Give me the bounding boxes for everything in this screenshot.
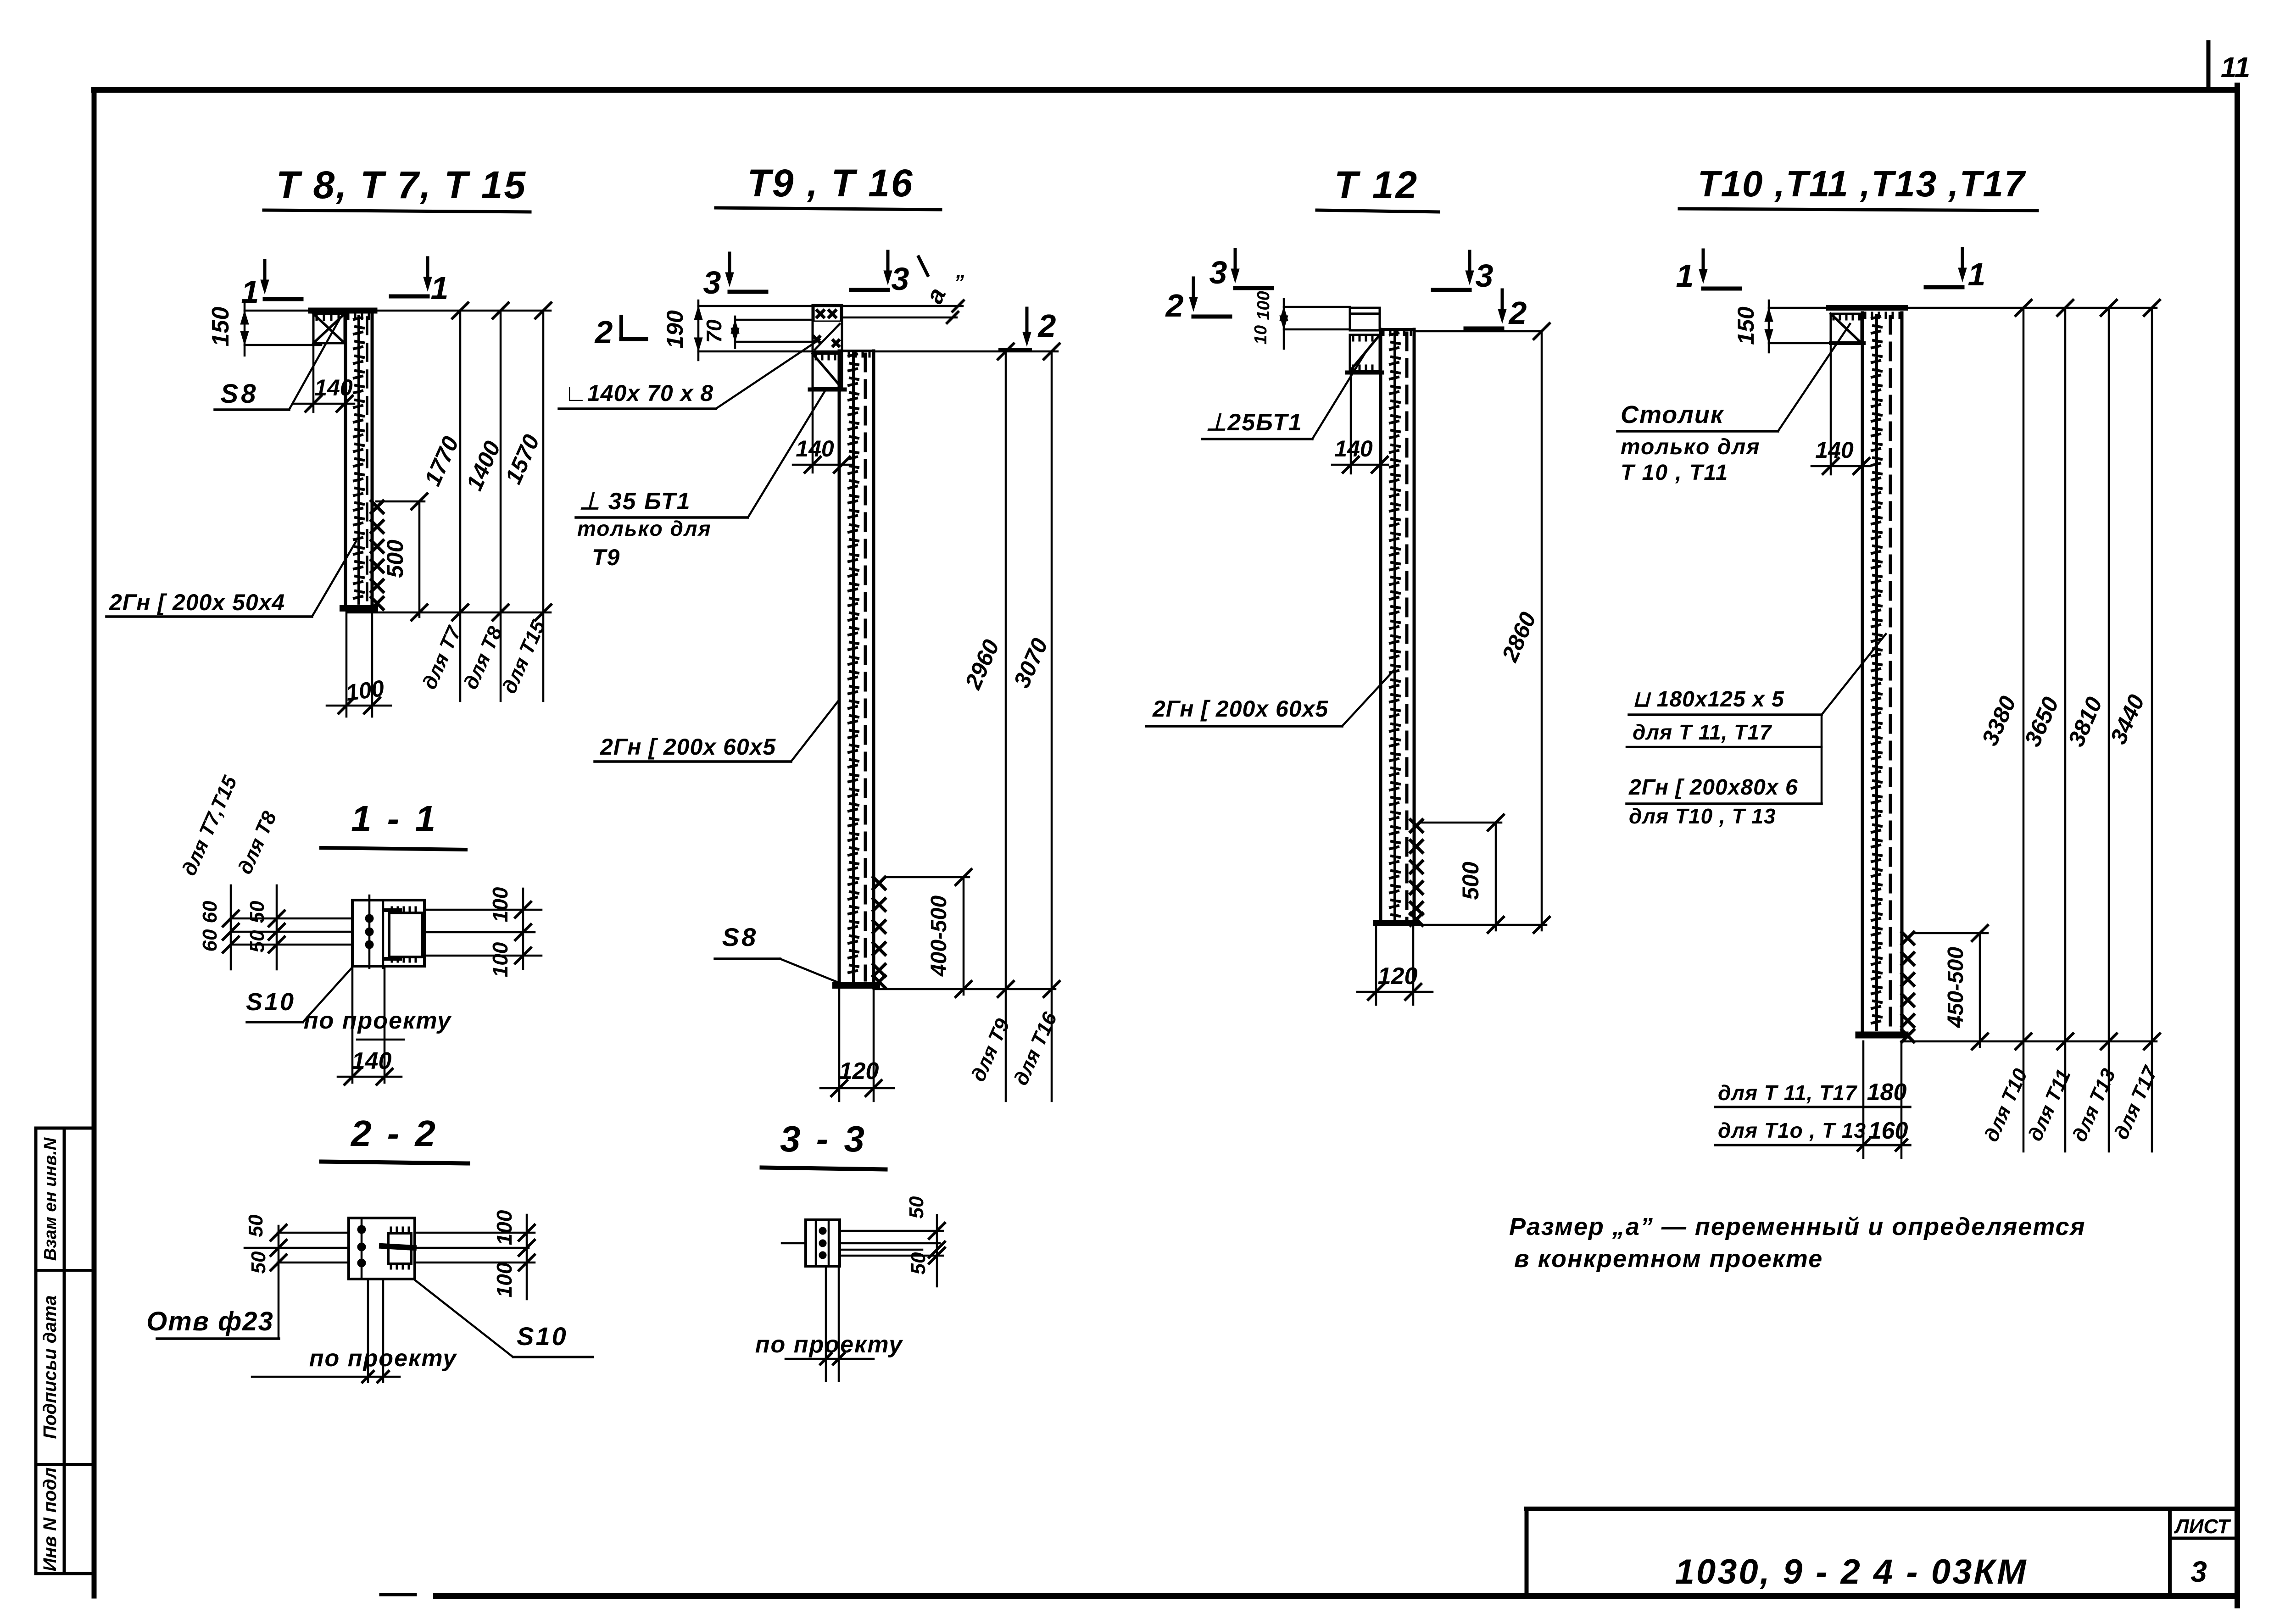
svg-text:10: 10 [1251, 325, 1271, 345]
svg-text:Т 10 , Т11: Т 10 , Т11 [1621, 461, 1728, 485]
svg-text:∟140х 70 х 8: ∟140х 70 х 8 [564, 380, 713, 406]
svg-text:”: ” [954, 271, 964, 294]
svg-text:2: 2 [1508, 295, 1527, 331]
svg-text:100: 100 [488, 887, 512, 922]
svg-text:50: 50 [247, 1251, 270, 1274]
svg-text:Т10 ,Т11 ,Т13 ,Т17: Т10 ,Т11 ,Т13 ,Т17 [1698, 163, 2026, 204]
svg-text:для Т 11, Т17: для Т 11, Т17 [1633, 720, 1772, 744]
svg-text:50: 50 [245, 1214, 267, 1237]
svg-text:3: 3 [1476, 258, 1494, 294]
svg-text:3 - 3: 3 - 3 [780, 1118, 867, 1159]
svg-text:для Т10 , Т 13: для Т10 , Т 13 [1629, 804, 1776, 828]
svg-text:1030, 9 - 2 4 - 03КМ: 1030, 9 - 2 4 - 03КМ [1675, 1552, 2028, 1591]
svg-text:Отв ф23: Отв ф23 [146, 1307, 274, 1336]
svg-text:120: 120 [1378, 963, 1418, 990]
svg-text:Т9 , Т 16: Т9 , Т 16 [747, 161, 914, 205]
svg-text:100: 100 [1254, 291, 1273, 320]
svg-text:100: 100 [492, 1210, 516, 1245]
svg-text:2: 2 [1165, 288, 1184, 323]
svg-text:2: 2 [594, 314, 613, 350]
svg-text:140: 140 [796, 436, 834, 462]
svg-text:Взам ен инв.N: Взам ен инв.N [41, 1137, 60, 1261]
svg-text:450-500: 450-500 [1944, 947, 1968, 1028]
svg-text:⊔ 180х125 х 5: ⊔ 180х125 х 5 [1633, 687, 1784, 712]
svg-text:500: 500 [382, 539, 408, 578]
svg-text:100: 100 [344, 675, 386, 706]
svg-text:ЛИСТ: ЛИСТ [2174, 1515, 2231, 1538]
svg-text:Подписьи дата: Подписьи дата [40, 1295, 60, 1439]
svg-text:180: 180 [1867, 1079, 1907, 1106]
svg-text:S8: S8 [221, 379, 259, 409]
svg-text:Столик: Столик [1621, 401, 1724, 428]
svg-text:1 - 1: 1 - 1 [351, 798, 438, 839]
svg-text:120: 120 [839, 1058, 879, 1085]
svg-text:⊥ 35 БТ1: ⊥ 35 БТ1 [579, 488, 691, 515]
svg-text:S8: S8 [722, 923, 758, 951]
svg-text:140: 140 [314, 375, 353, 400]
svg-text:в конкретном проекте: в конкретном проекте [1514, 1245, 1823, 1273]
svg-text:500: 500 [1458, 862, 1483, 900]
svg-text:100: 100 [492, 1262, 516, 1297]
svg-text:S10: S10 [246, 988, 295, 1016]
svg-text:3: 3 [892, 261, 909, 297]
svg-text:Размер „а” — переменный и оп: Размер „а” — переменный и определяется [1509, 1213, 2086, 1240]
svg-text:150: 150 [1733, 306, 1759, 345]
svg-text:60: 60 [199, 901, 221, 923]
svg-text:3: 3 [2190, 1555, 2207, 1588]
svg-text:50: 50 [907, 1252, 930, 1274]
svg-text:Т9: Т9 [592, 545, 620, 570]
svg-text:1: 1 [431, 270, 449, 306]
svg-text:1: 1 [1676, 258, 1694, 294]
svg-text:S10: S10 [517, 1322, 568, 1351]
svg-text:2Гн [ 200х80х 6: 2Гн [ 200х80х 6 [1628, 775, 1798, 800]
svg-text:2: 2 [1037, 308, 1056, 344]
svg-text:по проекту: по проекту [304, 1007, 452, 1034]
svg-text:140: 140 [352, 1048, 392, 1074]
svg-text:Инв N подл: Инв N подл [40, 1468, 60, 1572]
svg-text:2Гн [ 200х 50х4: 2Гн [ 200х 50х4 [109, 590, 285, 615]
svg-text:⊥25БТ1: ⊥25БТ1 [1206, 409, 1303, 436]
svg-text:только для: только для [577, 517, 712, 540]
svg-text:2Гн [ 200х 60х5: 2Гн [ 200х 60х5 [1152, 696, 1328, 722]
svg-text:60: 60 [199, 929, 221, 951]
svg-text:3: 3 [1209, 255, 1227, 290]
svg-text:для Т 11, Т17: для Т 11, Т17 [1718, 1081, 1858, 1105]
svg-text:Т 12: Т 12 [1334, 163, 1419, 206]
svg-text:2Гн [ 200х 60х5: 2Гн [ 200х 60х5 [600, 734, 776, 760]
svg-text:для Т1о , Т 13: для Т1о , Т 13 [1718, 1118, 1866, 1142]
svg-text:3: 3 [703, 265, 721, 300]
svg-text:190: 190 [662, 310, 688, 349]
svg-text:140: 140 [1815, 437, 1854, 463]
svg-text:100: 100 [488, 942, 512, 977]
svg-text:400-500: 400-500 [927, 895, 951, 977]
svg-text:140: 140 [1334, 436, 1373, 462]
svg-text:1: 1 [1968, 256, 1986, 292]
svg-text:11: 11 [2221, 52, 2250, 83]
svg-text:150: 150 [207, 307, 234, 347]
svg-text:50: 50 [246, 901, 268, 923]
svg-text:Т 8, Т 7, Т 15: Т 8, Т 7, Т 15 [276, 163, 527, 206]
svg-text:2 - 2: 2 - 2 [350, 1113, 438, 1154]
svg-text:50: 50 [246, 930, 268, 952]
svg-text:50: 50 [905, 1196, 928, 1218]
svg-text:160: 160 [1868, 1118, 1908, 1144]
svg-text:только для: только для [1621, 435, 1761, 459]
svg-text:70: 70 [702, 319, 726, 343]
